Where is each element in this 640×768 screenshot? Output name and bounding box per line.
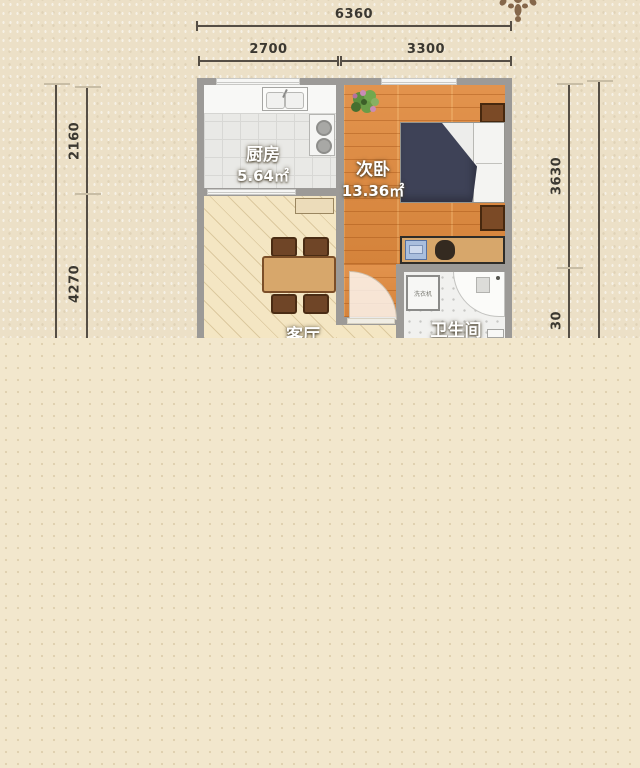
living-room-label: 客厅 bbox=[273, 321, 333, 338]
bed bbox=[400, 122, 505, 203]
bathroom-label: 卫生间 bbox=[419, 316, 493, 338]
kitchen-area: 5.64㎡ bbox=[237, 165, 289, 186]
dimension-label-bedroom-width: 3300 bbox=[341, 42, 511, 57]
wall-left bbox=[197, 78, 204, 338]
dimension-line-right-lower bbox=[568, 268, 570, 338]
faucet-icon bbox=[282, 89, 288, 98]
dimension-line-bedroom-width bbox=[341, 60, 511, 62]
shower-drain-icon bbox=[476, 277, 490, 293]
dimension-line-total-width bbox=[197, 25, 511, 27]
floorplan-page: 6360 2700 3300 2160 4270 3630 30 bbox=[0, 0, 640, 768]
dimension-line-left-outer bbox=[55, 84, 57, 338]
dimension-line-left-lower bbox=[86, 194, 88, 338]
dimension-label-right-lower: 30 bbox=[548, 302, 566, 338]
living-room-floor-patch bbox=[336, 325, 404, 338]
bed-duvet bbox=[401, 123, 477, 202]
dining-table bbox=[262, 256, 336, 293]
apartment-plan: 洗衣机 厨房 5.64㎡ bbox=[197, 78, 512, 338]
dimension-label-left-upper: 2160 bbox=[66, 87, 84, 194]
office-chair bbox=[435, 240, 455, 260]
wall-right bbox=[505, 78, 512, 338]
dining-chair bbox=[303, 237, 329, 257]
bedroom-area: 13.36㎡ bbox=[342, 180, 404, 201]
living-room-name: 客厅 bbox=[286, 321, 320, 339]
dimension-label-left-lower: 4270 bbox=[66, 232, 84, 336]
bedroom-name: 次卧 bbox=[356, 155, 390, 180]
kitchen-name: 厨房 bbox=[246, 140, 280, 165]
dimension-line-kitchen-width bbox=[199, 60, 338, 62]
bathroom-name: 卫生间 bbox=[431, 316, 482, 339]
shower-handle-icon bbox=[496, 276, 500, 280]
kitchen-sink bbox=[262, 87, 308, 111]
kitchen-label: 厨房 5.64㎡ bbox=[207, 136, 319, 190]
nightstand-bottom bbox=[480, 205, 505, 231]
dimension-line-right-outer bbox=[598, 81, 600, 338]
bedroom-label: 次卧 13.36㎡ bbox=[340, 152, 406, 204]
dining-chair bbox=[271, 237, 297, 257]
dimension-label-total-width: 6360 bbox=[197, 7, 511, 22]
dining-chair bbox=[303, 294, 329, 314]
wall-bathroom-left bbox=[396, 264, 404, 338]
dimension-label-right-upper: 3630 bbox=[548, 84, 566, 268]
kitchen-window bbox=[216, 78, 300, 85]
washing-machine: 洗衣机 bbox=[406, 275, 440, 311]
wall-bathroom-top bbox=[396, 264, 505, 272]
desk bbox=[400, 236, 505, 264]
page-background bbox=[0, 338, 640, 768]
burner-icon bbox=[316, 120, 332, 136]
dining-chair bbox=[271, 294, 297, 314]
bedroom-window bbox=[381, 78, 457, 85]
nightstand-top bbox=[480, 103, 505, 123]
washing-machine-label: 洗衣机 bbox=[414, 289, 432, 298]
dimension-line-right-upper bbox=[568, 84, 570, 268]
cabinet bbox=[295, 198, 334, 214]
dimension-line-left-upper bbox=[86, 87, 88, 194]
computer-icon bbox=[405, 240, 427, 260]
dimension-label-kitchen-width: 2700 bbox=[199, 42, 338, 57]
floorplan-image: 6360 2700 3300 2160 4270 3630 30 bbox=[0, 0, 640, 338]
bedroom-door-leaf bbox=[347, 318, 395, 324]
bed-pillows bbox=[473, 123, 504, 202]
potted-plant-icon bbox=[347, 87, 383, 121]
